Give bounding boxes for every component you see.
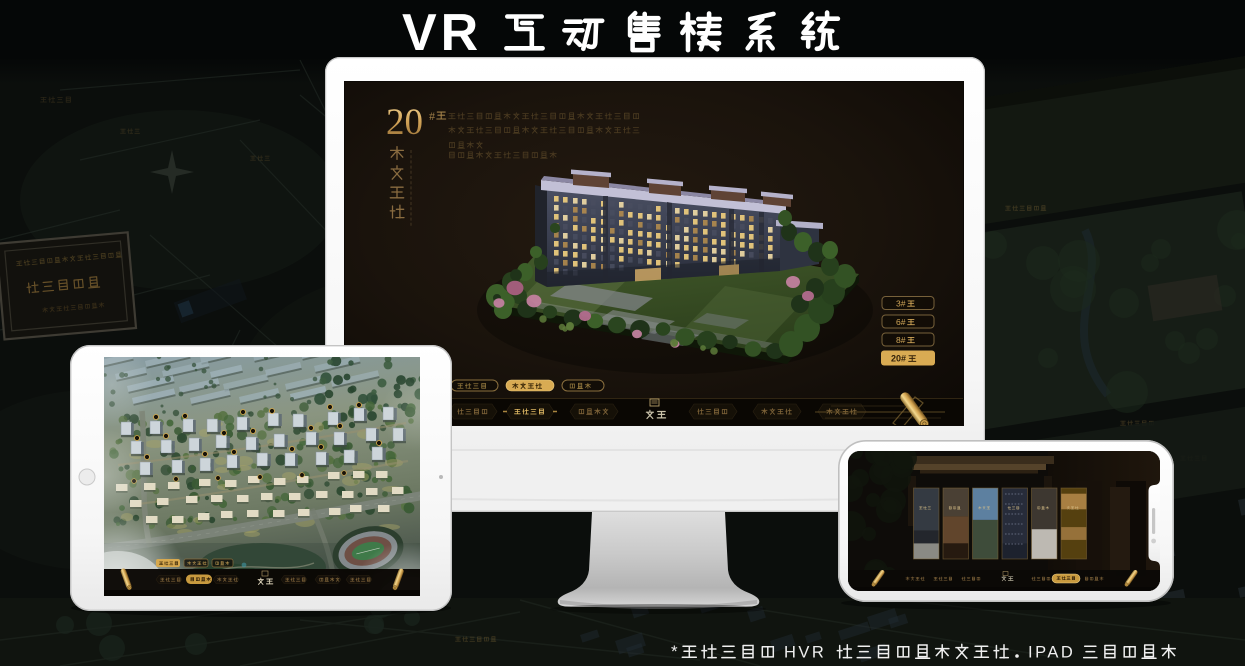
svg-text:20: 20 bbox=[386, 102, 423, 143]
svg-text:8#: 8# bbox=[896, 335, 906, 345]
svg-text:VR: VR bbox=[402, 4, 482, 62]
svg-text:IPAD: IPAD bbox=[1028, 644, 1075, 662]
svg-text:3#: 3# bbox=[896, 299, 906, 309]
svg-text:6#: 6# bbox=[896, 317, 906, 327]
svg-text:#: # bbox=[429, 109, 435, 123]
svg-text:20#: 20# bbox=[891, 354, 906, 364]
svg-text:*: * bbox=[671, 642, 678, 661]
svg-text:HVR: HVR bbox=[784, 644, 826, 662]
